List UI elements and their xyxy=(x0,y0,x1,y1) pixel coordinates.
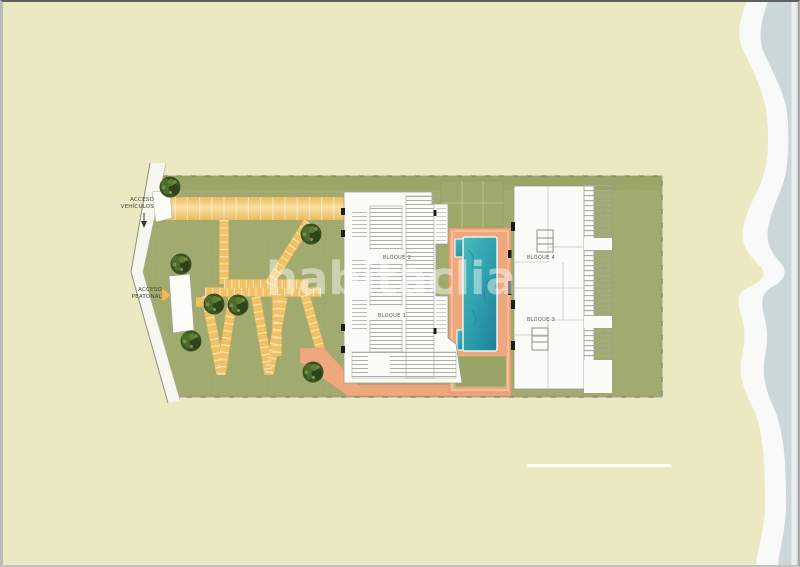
underline-mark xyxy=(527,464,671,467)
tree-icon xyxy=(171,254,192,275)
garden-grid xyxy=(441,181,503,227)
tree-icon xyxy=(160,177,181,198)
tree-icon xyxy=(204,294,225,315)
label-line: ACCESO xyxy=(130,197,154,203)
label-line: VEHÍCULOS xyxy=(121,204,154,210)
tree-icon xyxy=(181,331,202,352)
deck-lawn-patch xyxy=(455,356,506,387)
label-acceso-vehiculos: ACCESO VEHÍCULOS xyxy=(96,197,154,212)
label-line: PEATONAL xyxy=(132,294,162,300)
gallery-landing xyxy=(584,238,612,250)
label-bloque-3: BLOQUE 3 xyxy=(519,317,563,323)
roof-gap xyxy=(368,356,390,374)
tree-icon xyxy=(303,362,324,383)
tree-icon xyxy=(301,224,322,245)
tree-icon xyxy=(228,295,249,316)
label-line: ACCESO xyxy=(138,287,162,293)
pedestrian-entrance-pad xyxy=(169,274,194,333)
roof-hatch-strip xyxy=(352,352,456,378)
balcony-hatch xyxy=(436,300,446,336)
watermark-habitaclia: habitaclia xyxy=(266,252,516,305)
balcony-hatch xyxy=(436,206,446,242)
gallery-landing xyxy=(584,360,612,393)
label-acceso-peatonal: ACCESO PEATONAL xyxy=(104,287,162,302)
label-bloque-1: BLOQUE 1 xyxy=(370,313,414,319)
building-bloque-3-4 xyxy=(511,182,612,393)
site-plan-page: ACCESO VEHÍCULOS ACCESO PEATONAL BLOQUE … xyxy=(0,0,800,567)
gallery-landing xyxy=(584,316,612,328)
coastline-graphic xyxy=(739,0,800,567)
label-bloque-4: BLOQUE 4 xyxy=(519,255,563,261)
